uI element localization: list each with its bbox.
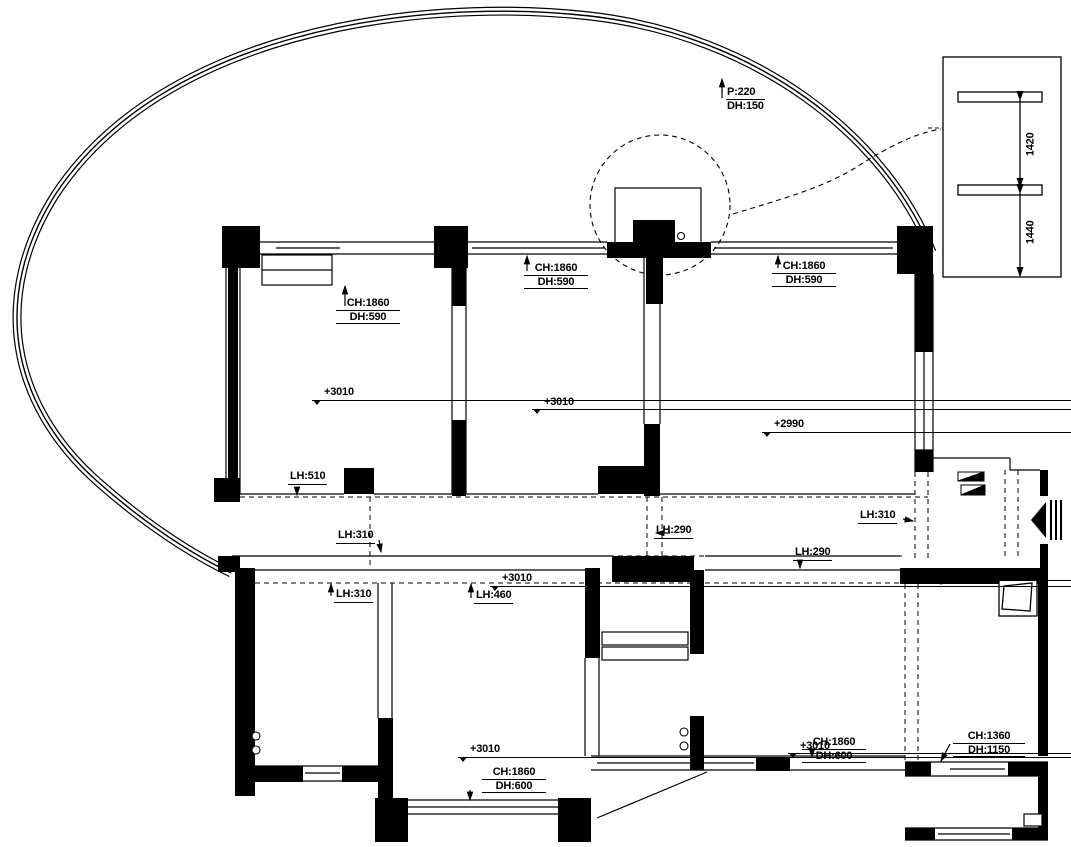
level-label: +2990 bbox=[936, 567, 1071, 582]
level-marker-icon bbox=[313, 400, 321, 405]
level-label: +3010 bbox=[532, 396, 1071, 411]
entry-hatch-symbols bbox=[958, 472, 985, 495]
level-marker-icon bbox=[459, 757, 467, 762]
soffit-height-label: LH:510 bbox=[288, 470, 327, 485]
soffit-height-label: LH:310 bbox=[336, 529, 375, 544]
window-height-label: CH:1860 DH:590 bbox=[336, 297, 400, 324]
level-label: +3010 bbox=[788, 740, 1071, 755]
ceiling-dashed-lines bbox=[240, 470, 1018, 760]
balcony-curve bbox=[17, 11, 932, 573]
curve-height-label: P:220 DH:150 bbox=[726, 86, 765, 112]
level-marker-icon bbox=[789, 753, 797, 758]
soffit-height-label: LH:310 bbox=[858, 509, 897, 524]
soffit-height-label: LH:460 bbox=[474, 589, 513, 604]
window-height-label: CH:1860 DH:600 bbox=[482, 766, 546, 793]
window-height-label: CH:1860 DH:590 bbox=[772, 260, 836, 287]
level-marker-icon bbox=[533, 409, 541, 414]
entry-door-arrow-icon bbox=[1031, 500, 1061, 540]
detail-dim-label: 1420 bbox=[1025, 124, 1038, 164]
level-marker-icon bbox=[763, 432, 771, 437]
level-marker-icon bbox=[937, 580, 945, 585]
soffit-height-label: LH:290 bbox=[654, 524, 693, 539]
window-height-label: CH:1860 DH:590 bbox=[524, 262, 588, 289]
soffit-height-label: LH:310 bbox=[334, 588, 373, 603]
detail-dim-label: 1440 bbox=[1025, 212, 1038, 252]
detail-box bbox=[943, 57, 1061, 277]
floor-plan-canvas: P:220 DH:150 1420 1440 CH:1860 DH:590 CH… bbox=[0, 0, 1071, 847]
soffit-height-label: LH:290 bbox=[793, 546, 832, 561]
label-leaders bbox=[297, 256, 950, 800]
level-label: +2990 bbox=[762, 418, 1071, 433]
pipe-circle bbox=[678, 233, 685, 240]
